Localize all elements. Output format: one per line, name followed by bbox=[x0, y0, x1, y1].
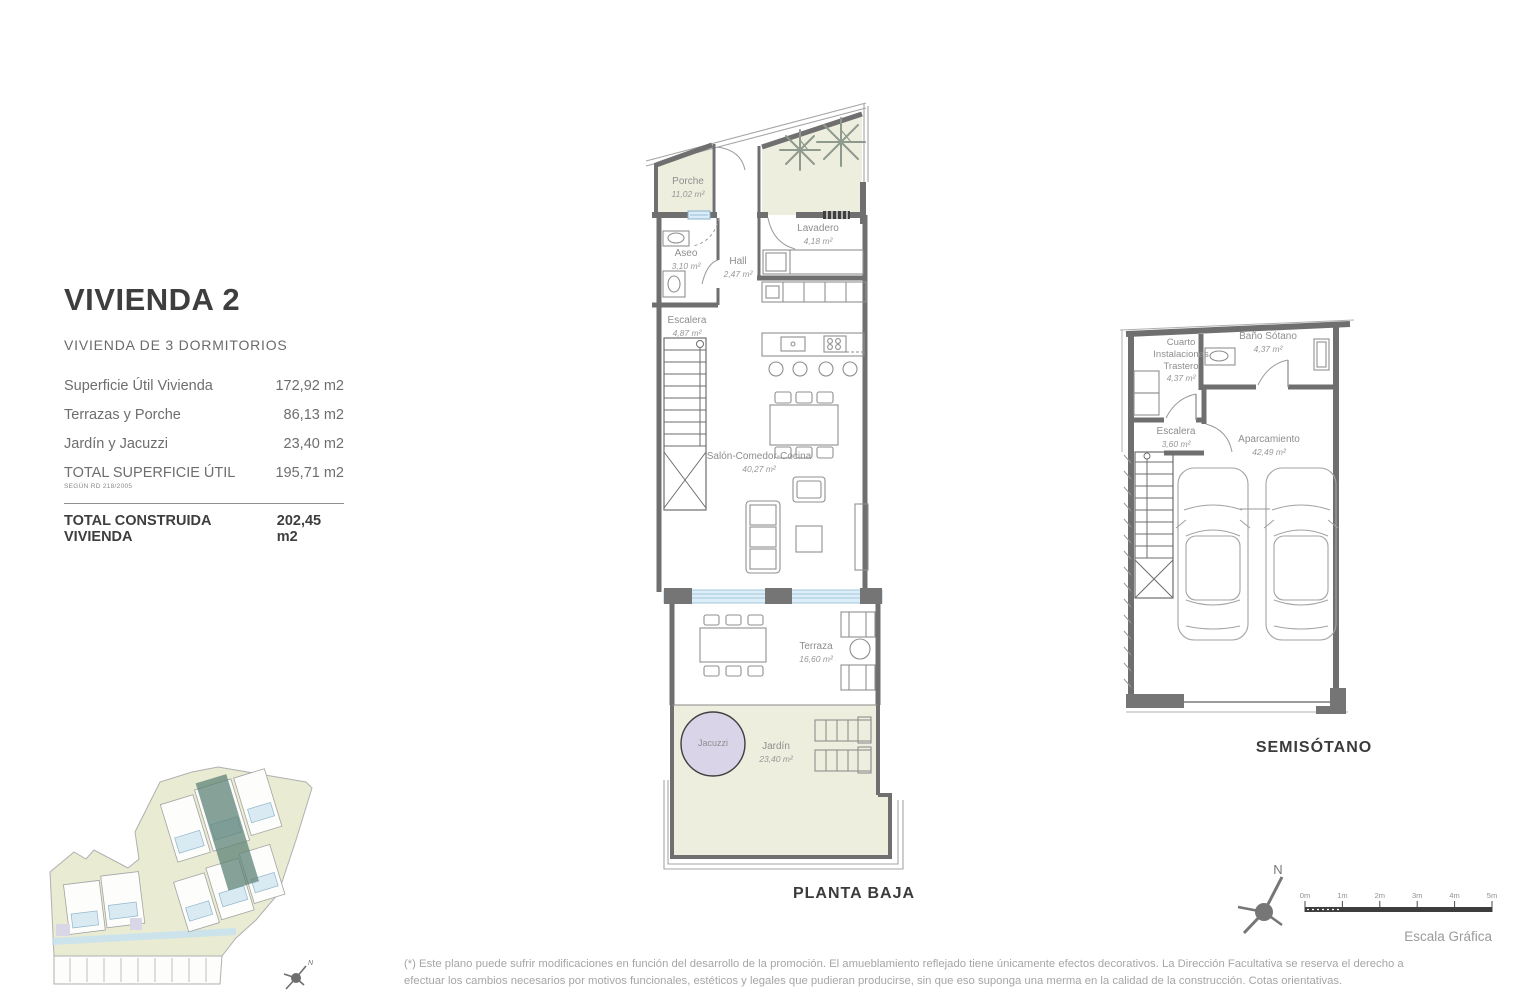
legend: N 0m 1m 2m 3m 4m 5m Escala Gráfica bbox=[1230, 855, 1510, 960]
dining-table bbox=[770, 392, 838, 458]
vent-grille bbox=[823, 211, 850, 219]
kitchen-cabinets bbox=[762, 282, 866, 302]
planta-baja-drawing bbox=[640, 100, 920, 912]
row-value: 195,71 m2 bbox=[275, 465, 344, 481]
row-note: SEGÚN RD 218/2005 bbox=[64, 483, 235, 490]
room-label-porche: Porche 11,02 m² bbox=[672, 176, 705, 199]
scale-tick-label: 5m bbox=[1487, 891, 1497, 900]
glass-wall bbox=[664, 588, 882, 604]
row-value: 86,13 m2 bbox=[284, 407, 344, 423]
scale-tick-label: 0m bbox=[1300, 891, 1310, 900]
row-value: 23,40 m2 bbox=[284, 436, 344, 452]
room-label-cuarto-instalaciones: Cuarto Instalaciones Trastero 4,37 m² bbox=[1145, 337, 1217, 383]
north-compass-icon: N bbox=[1238, 862, 1283, 933]
room-label-aseo: Aseo 3,10 m² bbox=[672, 248, 701, 271]
page-title: VIVIENDA 2 bbox=[64, 283, 344, 317]
scale-tick-label: 3m bbox=[1412, 891, 1422, 900]
car-icon bbox=[1264, 468, 1338, 640]
north-label: N bbox=[1273, 862, 1282, 877]
site-plan-thumbnail: N bbox=[40, 742, 360, 1004]
stairs-icon bbox=[1135, 452, 1173, 598]
room-label-jacuzzi: Jacuzzi bbox=[698, 738, 728, 749]
scale-bar: 0m 1m 2m 3m 4m 5m Escala Gráfica bbox=[1300, 891, 1497, 944]
stairs-icon bbox=[664, 338, 706, 510]
room-label-terraza: Terraza 16,60 m² bbox=[799, 641, 833, 664]
room-label-escalera: Escalera 4,87 m² bbox=[668, 315, 707, 338]
row-label: Superficie Útil Vivienda bbox=[64, 378, 213, 394]
room-label-aparcamiento: Aparcamiento 42,49 m² bbox=[1238, 434, 1300, 457]
row-label: TOTAL SUPERFICIE ÚTIL SEGÚN RD 218/2005 bbox=[64, 465, 235, 490]
site-north-compass-icon: N bbox=[284, 960, 314, 989]
disclaimer-line-1: (*) Este plano puede sufrir modificacion… bbox=[404, 956, 1536, 973]
footings bbox=[1126, 688, 1346, 714]
row-label: TOTAL CONSTRUIDA VIVIENDA bbox=[64, 513, 277, 545]
kitchen-island bbox=[762, 333, 864, 376]
table-row: Terrazas y Porche 86,13 m2 bbox=[64, 407, 344, 423]
living-furniture bbox=[746, 477, 868, 573]
floor-plan-semisotano: Cuarto Instalaciones Trastero 4,37 m² Ba… bbox=[1110, 315, 1390, 767]
room-label-hall: Hall 2,47 m² bbox=[724, 256, 753, 279]
site-lavender-patch bbox=[130, 918, 142, 930]
room-label-bano-sotano: Baño Sótano 4,37 m² bbox=[1239, 331, 1297, 354]
table-row: TOTAL SUPERFICIE ÚTIL SEGÚN RD 218/2005 … bbox=[64, 465, 344, 490]
scale-tick-label: 4m bbox=[1449, 891, 1459, 900]
terrace-furniture bbox=[700, 612, 875, 690]
planta-baja-caption: PLANTA BAJA bbox=[793, 885, 915, 903]
row-label: Jardín y Jacuzzi bbox=[64, 436, 168, 452]
scale-caption: Escala Gráfica bbox=[1404, 929, 1492, 944]
scale-tick-label: 2m bbox=[1375, 891, 1385, 900]
disclaimer-line-2: efectuar los cambios necesarios por moti… bbox=[404, 973, 1536, 990]
row-value: 172,92 m2 bbox=[275, 378, 344, 394]
site-parking-strip bbox=[54, 956, 222, 984]
room-label-lavadero: Lavadero 4,18 m² bbox=[797, 223, 839, 246]
semisotano-caption: SEMISÓTANO bbox=[1256, 739, 1372, 757]
total-row: TOTAL CONSTRUIDA VIVIENDA 202,45 m2 bbox=[64, 503, 344, 545]
row-label: Terrazas y Porche bbox=[64, 407, 181, 423]
site-lavender-patch bbox=[56, 924, 70, 936]
room-label-escalera: Escalera 3,60 m² bbox=[1157, 426, 1196, 449]
room-label-jardin: Jardín 23,40 m² bbox=[759, 741, 793, 764]
surface-table: Superficie Útil Vivienda 172,92 m2 Terra… bbox=[64, 378, 344, 545]
row-value: 202,45 m2 bbox=[277, 513, 344, 545]
car-icon bbox=[1176, 468, 1250, 640]
table-row: Superficie Útil Vivienda 172,92 m2 bbox=[64, 378, 344, 394]
disclaimer: (*) Este plano puede sufrir modificacion… bbox=[404, 956, 1536, 990]
laundry-counter bbox=[763, 250, 863, 274]
scale-tick-label: 1m bbox=[1337, 891, 1347, 900]
table-row: Jardín y Jacuzzi 23,40 m2 bbox=[64, 436, 344, 452]
floor-plan-sheet: VIVIENDA 2 VIVIENDA DE 3 DORMITORIOS Sup… bbox=[0, 0, 1536, 1006]
room-label-salon: Salón-Comedor-Cocina 40,27 m² bbox=[707, 451, 812, 474]
info-panel: VIVIENDA 2 VIVIENDA DE 3 DORMITORIOS Sup… bbox=[64, 283, 344, 545]
floor-plan-planta-baja: Porche 11,02 m² Aseo 3,10 m² Hall 2,47 m… bbox=[640, 100, 920, 912]
entry-window bbox=[688, 211, 710, 219]
site-north-label: N bbox=[308, 960, 314, 967]
subtitle: VIVIENDA DE 3 DORMITORIOS bbox=[64, 337, 344, 353]
